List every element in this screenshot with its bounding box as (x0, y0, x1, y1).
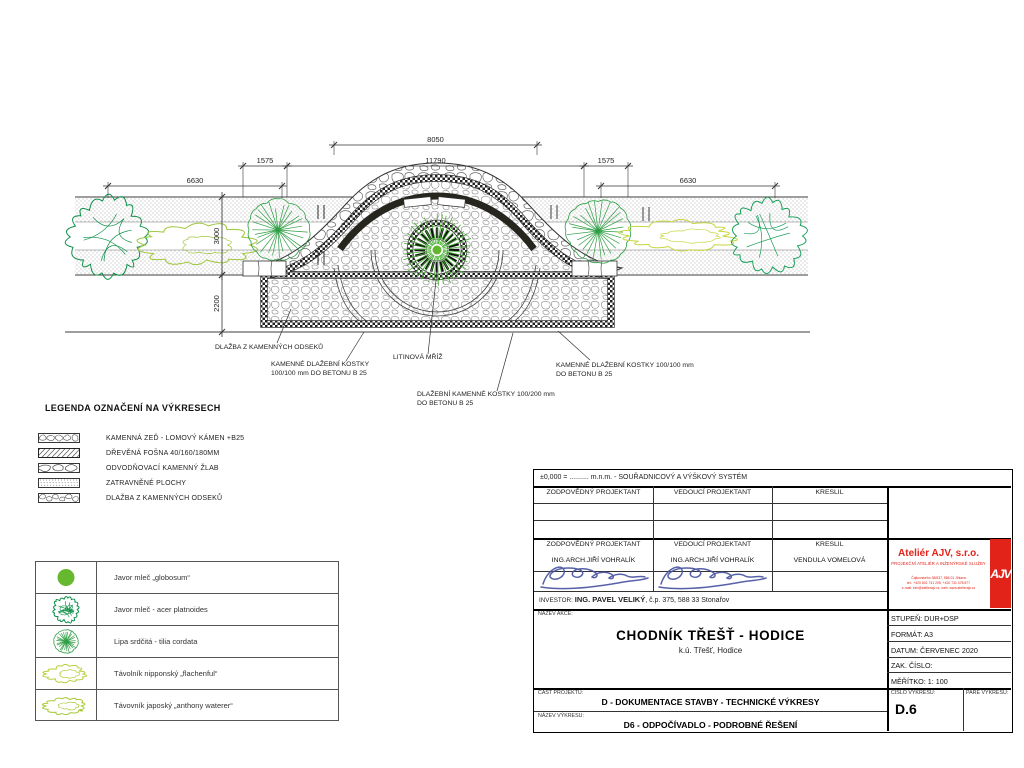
title-block: ±0,000 = .......... m.n.m. - SOUŘADNICOV… (533, 469, 1013, 733)
project-subtitle: k.ú. Třešť, Hodice (534, 646, 887, 655)
dimension: 6630 (103, 176, 287, 189)
plant-row: Távovník japoský „anthony waterer“ (36, 690, 338, 721)
dimension: 2200 (212, 270, 225, 337)
legend-item: DLAŽBA Z KAMENNÝCH ODSEKŮ (38, 493, 222, 503)
legend-item: ODVODŇOVACÍ KAMENNÝ ŽLAB (38, 463, 219, 473)
svg-text:DO BETONU B 25: DO BETONU B 25 (417, 400, 473, 407)
investor-name: ING. PAVEL VELIKÝ (575, 595, 645, 604)
dark-green-crown-icon (36, 594, 97, 625)
diagonal-hatch-swatch (38, 448, 80, 458)
dimension-label: 1575 (257, 156, 274, 165)
rubble-wall-swatch (38, 433, 80, 443)
cast-projektu-label: ČÁST PROJEKTU: (538, 690, 583, 696)
grass-stipple-swatch (38, 478, 80, 488)
col-header-kreslil: KRESLIL (772, 489, 887, 496)
stone-gutter-swatch (38, 463, 80, 473)
signatures (540, 562, 776, 592)
legend: LEGENDA OZNAČENÍ NA VÝKRESECH KAMENNÁ ZE… (45, 403, 221, 413)
plant-legend-table: Javor mleč „globosum“ Javor mleč - acer … (35, 561, 339, 721)
dimension: 6630 (596, 176, 780, 189)
plant-row: Távolník nipponský „flachenful“ (36, 658, 338, 690)
legend-item: KAMENNÁ ZEĎ - LOMOVÝ KÁMEN +B25 (38, 433, 244, 443)
drawing-sheet: 805011790157515756630663030002200 DLAŽBA… (0, 0, 1024, 768)
callout-cobbles-100-100-right: KAMENNÉ DLAŽEBNÍ KOSTKY 100/100 mm (556, 360, 694, 369)
company-name: Ateliér AJV, s.r.o. (887, 548, 990, 559)
cislo-vykresu-value: D.6 (895, 701, 917, 717)
solid-green-circle-icon (36, 562, 97, 593)
legend-item: DŘEVĚNÁ FOŠNA 40/160/180MM (38, 448, 219, 458)
dimension-label: 6630 (187, 176, 204, 185)
company-logo: AJV (990, 539, 1011, 608)
nazev-vykresu-label: NÁZEV VÝKRESU: (538, 713, 584, 719)
cislo-vykresu-label: ČÍSLO VÝKRESU: (891, 690, 935, 696)
svg-text:100/100 mm DO BETONU B 25: 100/100 mm DO BETONU B 25 (271, 370, 367, 377)
field-zak-cislo: ZAK. ČÍSLO: (891, 661, 1011, 670)
field-datum: DATUM: ČERVENEC 2020 (891, 646, 1011, 655)
dimension-label: 2200 (212, 295, 221, 312)
name-kreslil: VENDULA VOMELOVÁ (772, 557, 887, 564)
col-header-zodpovedny: ZODPOVĚDNÝ PROJEKTANT (534, 489, 653, 496)
ajv-logo-text: AJV (990, 567, 1010, 581)
dimension: 1575 (238, 156, 292, 169)
callout-cast-iron-grille: LITINOVÁ MŘÍŽ (393, 352, 442, 361)
datum-line: ±0,000 = .......... m.n.m. - SOUŘADNICOV… (540, 474, 747, 481)
callout-cobbles-100-200: DLAŽEBNÍ KAMENNÉ KOSTKY 100/200 mm (417, 389, 555, 398)
company-contact: Čajkovského 38/637, 586 01 Jihlava tel.:… (887, 576, 990, 591)
dimension-label: 1575 (598, 156, 615, 165)
dimension-label: 11790 (425, 156, 445, 165)
plant-row: Javor mleč „globosum“ (36, 562, 338, 594)
yellow-green-shrub-icon (36, 658, 97, 689)
stone-paving-swatch (38, 493, 80, 503)
field-meritko: MĚŘÍTKO: 1: 100 (891, 677, 1011, 686)
dimension-label: 6630 (680, 176, 697, 185)
field-stupen: STUPEŇ: DUR+DSP (891, 614, 1011, 623)
radial-green-crown-icon (36, 626, 97, 657)
svg-text:DO BETONU B 25: DO BETONU B 25 (556, 371, 612, 378)
investor-label: INVESTOR: (539, 597, 573, 604)
plant-row: Lipa srdčitá - tilia cordata (36, 626, 338, 658)
legend-title: LEGENDA OZNAČENÍ NA VÝKRESECH (45, 403, 221, 413)
nazev-vykresu-value: D6 - ODPOČÍVADLO - PODROBNÉ ŘEŠENÍ (534, 720, 887, 730)
legend-item: ZATRAVNĚNÉ PLOCHY (38, 478, 186, 488)
dimension: 8050 (329, 135, 542, 148)
cast-projektu-value: D - DOKUMENTACE STAVBY - TECHNICKÉ VÝKRE… (534, 697, 887, 707)
pare-vykresu-label: PARÉ VÝKRESU: (966, 690, 1008, 696)
project-title: CHODNÍK TŘEŠŤ - HODICE (534, 628, 887, 643)
dimension-label: 3000 (212, 228, 221, 245)
callout-stone-paving: DLAŽBA Z KAMENNÝCH ODSEKŮ (215, 342, 323, 351)
dimension-label: 8050 (427, 135, 444, 144)
callout-cobbles-100-100-left: KAMENNÉ DLAŽEBNÍ KOSTKY (271, 359, 370, 368)
col-header-vedouci: VEDOUCÍ PROJEKTANT (653, 489, 772, 496)
field-format: FORMÁT: A3 (891, 630, 1011, 639)
company-tagline: PROJEKČNÍ ATELIÉR A INŽENÝRSKÉ SLUŽBY (887, 561, 990, 566)
investor-row: INVESTOR: ING. PAVEL VELIKÝ, č.p. 375, 5… (539, 595, 729, 604)
plant-row: Javor mleč - acer platnoides (36, 594, 338, 626)
dimension: 1575 (579, 156, 633, 169)
nazev-akce-label: NÁZEV AKCE: (538, 611, 573, 617)
green-yellow-shrub-icon (36, 690, 97, 721)
